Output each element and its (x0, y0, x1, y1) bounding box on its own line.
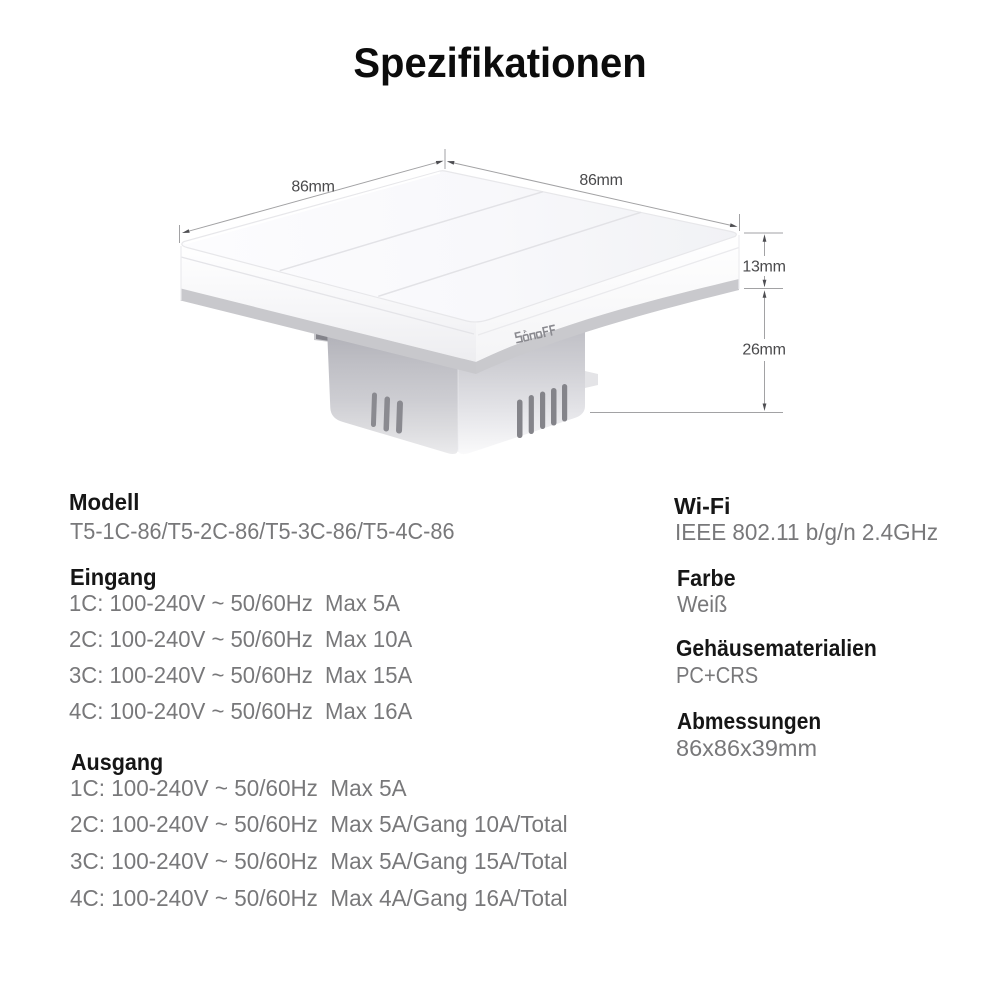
svg-text:86mm: 86mm (579, 172, 622, 189)
svg-text:86mm: 86mm (291, 179, 334, 196)
svg-text:13mm: 13mm (742, 259, 785, 276)
svg-text:26mm: 26mm (742, 342, 785, 359)
